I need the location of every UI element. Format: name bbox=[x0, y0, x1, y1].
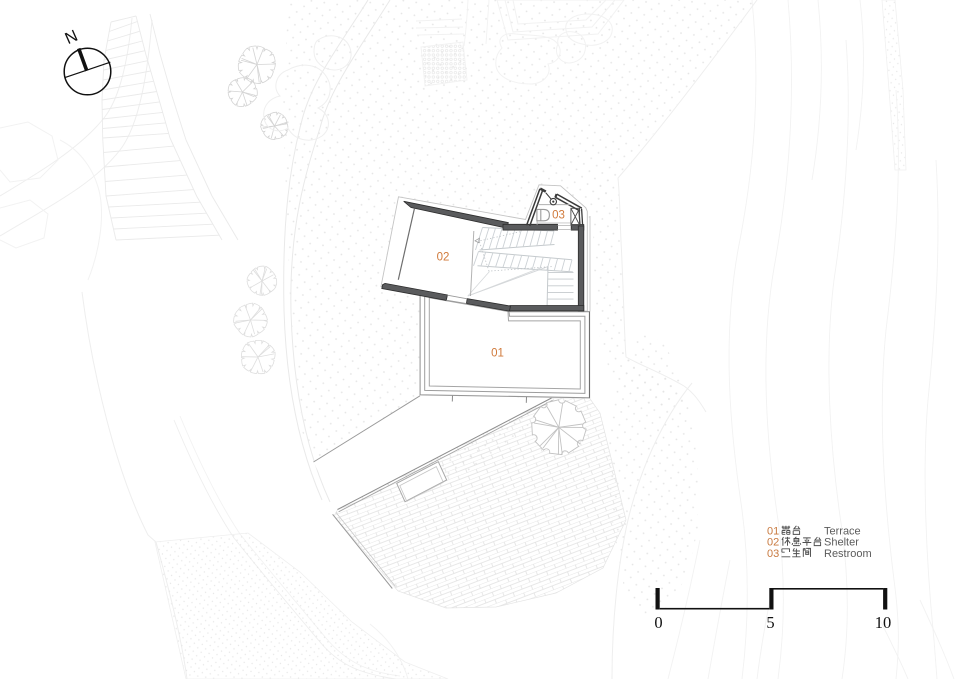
svg-text:0: 0 bbox=[654, 613, 662, 632]
svg-text:Shelter: Shelter bbox=[824, 537, 859, 549]
svg-text:03: 03 bbox=[767, 548, 779, 560]
svg-text:01: 01 bbox=[491, 348, 504, 360]
svg-text:02: 02 bbox=[767, 537, 779, 549]
svg-text:03: 03 bbox=[552, 210, 565, 222]
svg-text:10: 10 bbox=[875, 613, 892, 632]
svg-text:02: 02 bbox=[437, 252, 450, 264]
svg-text:Restroom: Restroom bbox=[824, 548, 872, 560]
svg-text:01: 01 bbox=[767, 526, 779, 538]
svg-text:Terrace: Terrace bbox=[824, 526, 861, 538]
svg-text:5: 5 bbox=[766, 613, 774, 632]
